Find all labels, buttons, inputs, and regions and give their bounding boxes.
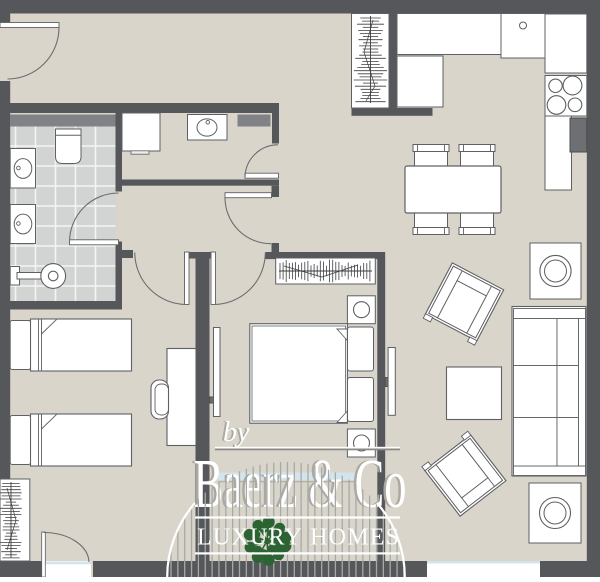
- svg-text:by: by: [223, 417, 250, 448]
